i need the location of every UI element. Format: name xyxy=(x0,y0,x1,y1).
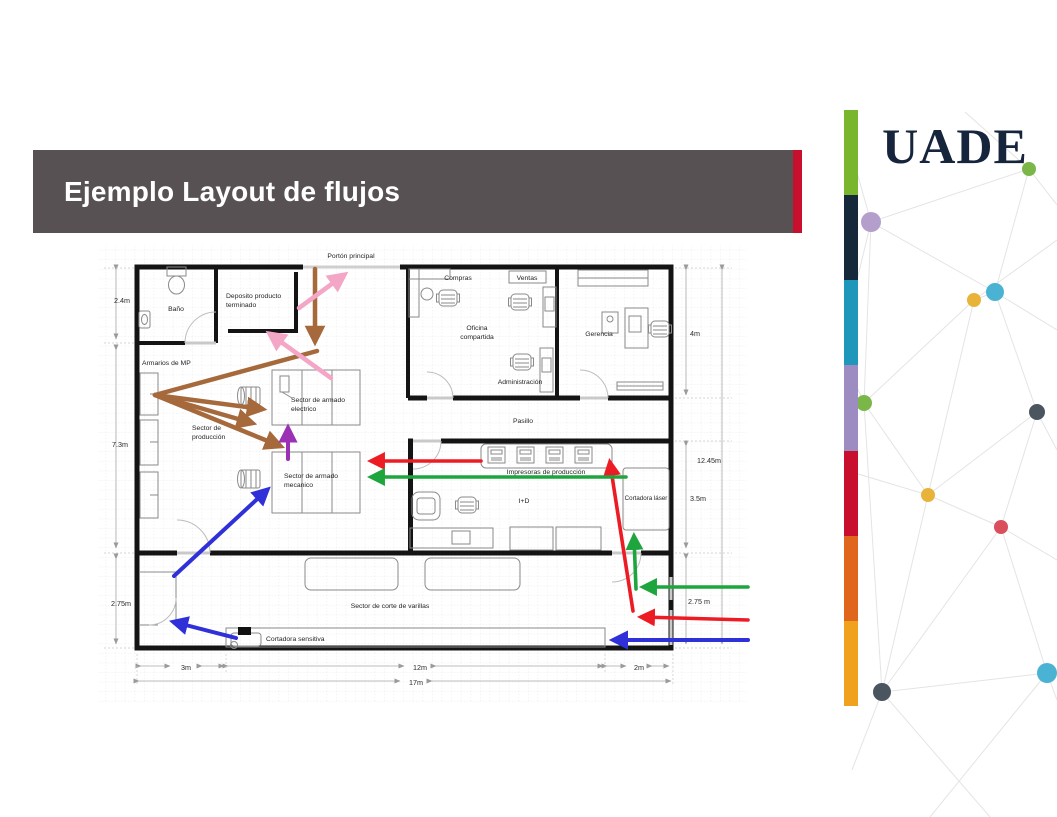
label-sector-prod-2: producción xyxy=(192,434,225,441)
label-sector-prod-1: Sector de xyxy=(192,425,221,432)
title-banner: Ejemplo Layout de flujos xyxy=(33,150,802,233)
stripe-segment xyxy=(844,536,858,621)
network-line xyxy=(930,673,1047,817)
network-line xyxy=(864,300,974,403)
dim-2m: 2m xyxy=(634,663,644,672)
label-cortadora-laser: Cortadora láser xyxy=(625,495,668,502)
label-oficina-1: Oficina xyxy=(466,325,487,332)
label-bano: Baño xyxy=(168,306,184,313)
label-porton: Portón principal xyxy=(327,253,375,260)
network-dot-cyan xyxy=(986,283,1004,301)
network-line xyxy=(882,527,1001,692)
network-line xyxy=(1001,412,1037,527)
label-id: I+D xyxy=(519,498,530,505)
brand-color-stripe xyxy=(844,110,858,706)
label-deposito-1: Deposito producto xyxy=(226,293,281,300)
label-oficina-2: compartida xyxy=(460,334,494,341)
network-dot-red xyxy=(994,520,1008,534)
label-pasillo: Pasillo xyxy=(513,418,533,425)
dim-2-75m-left: 2.75m xyxy=(111,599,131,608)
dim-2-75m-right: 2.75 m xyxy=(688,597,710,606)
network-line xyxy=(882,692,990,817)
dim-4m: 4m xyxy=(690,329,700,338)
label-administracion: Administración xyxy=(498,379,543,386)
label-ventas: Ventas xyxy=(517,275,538,282)
dim-12-45m: 12.45m xyxy=(697,456,721,465)
dim-12m: 12m xyxy=(413,663,427,672)
dim-3-5m: 3.5m xyxy=(690,494,706,503)
label-armado-elec-1: Sector de armado xyxy=(291,397,345,404)
flow-green-to-laser xyxy=(634,537,636,589)
label-impresoras: Impresoras de producción xyxy=(507,469,586,476)
stripe-segment xyxy=(844,280,858,365)
network-line xyxy=(882,495,928,692)
label-armado-elec-2: electrico xyxy=(291,406,317,413)
stripe-segment xyxy=(844,621,858,706)
network-dot-slate xyxy=(1029,404,1045,420)
stripe-segment xyxy=(844,110,858,195)
label-deposito-2: terminado xyxy=(226,302,256,309)
stripe-segment xyxy=(844,195,858,280)
label-armado-mec-2: mecanico xyxy=(284,482,313,489)
network-dot-green xyxy=(856,395,872,411)
network-line xyxy=(882,673,1047,692)
network-dot-slate xyxy=(873,683,891,701)
network-line xyxy=(995,292,1037,412)
dim-7-3m: 7.3m xyxy=(112,440,128,449)
label-corte-varillas: Sector de corte de varillas xyxy=(351,603,430,610)
network-graphic xyxy=(845,112,1057,817)
network-line xyxy=(995,169,1029,292)
label-armado-mec-1: Sector de armado xyxy=(284,473,338,480)
label-cortadora-sensitiva: Cortadora sensitiva xyxy=(266,636,325,643)
network-line xyxy=(928,495,1001,527)
network-line xyxy=(864,403,882,692)
network-dot-yellow xyxy=(921,488,935,502)
label-armarios: Armarios de MP xyxy=(142,360,191,367)
dim-3m: 3m xyxy=(181,663,191,672)
network-line xyxy=(1001,527,1047,673)
network-dot-yellow xyxy=(967,293,981,307)
label-compras: Compras xyxy=(444,275,472,282)
label-gerencia: Gerencia xyxy=(585,331,613,338)
network-line xyxy=(871,222,995,292)
uade-logo: UADE xyxy=(880,118,1030,174)
network-line xyxy=(864,222,871,403)
stripe-segment xyxy=(844,451,858,536)
network-line xyxy=(871,169,1029,222)
stripe-segment xyxy=(844,365,858,450)
dim-17m: 17m xyxy=(409,678,423,687)
plan-grid xyxy=(98,246,746,702)
network-line xyxy=(995,292,1057,330)
banner-accent-stripe xyxy=(793,150,802,233)
network-line xyxy=(864,403,928,495)
dim-2-4m: 2.4m xyxy=(114,296,130,305)
slide-title: Ejemplo Layout de flujos xyxy=(64,176,400,208)
network-dot-purple xyxy=(861,212,881,232)
network-dot-cyan xyxy=(1037,663,1057,683)
